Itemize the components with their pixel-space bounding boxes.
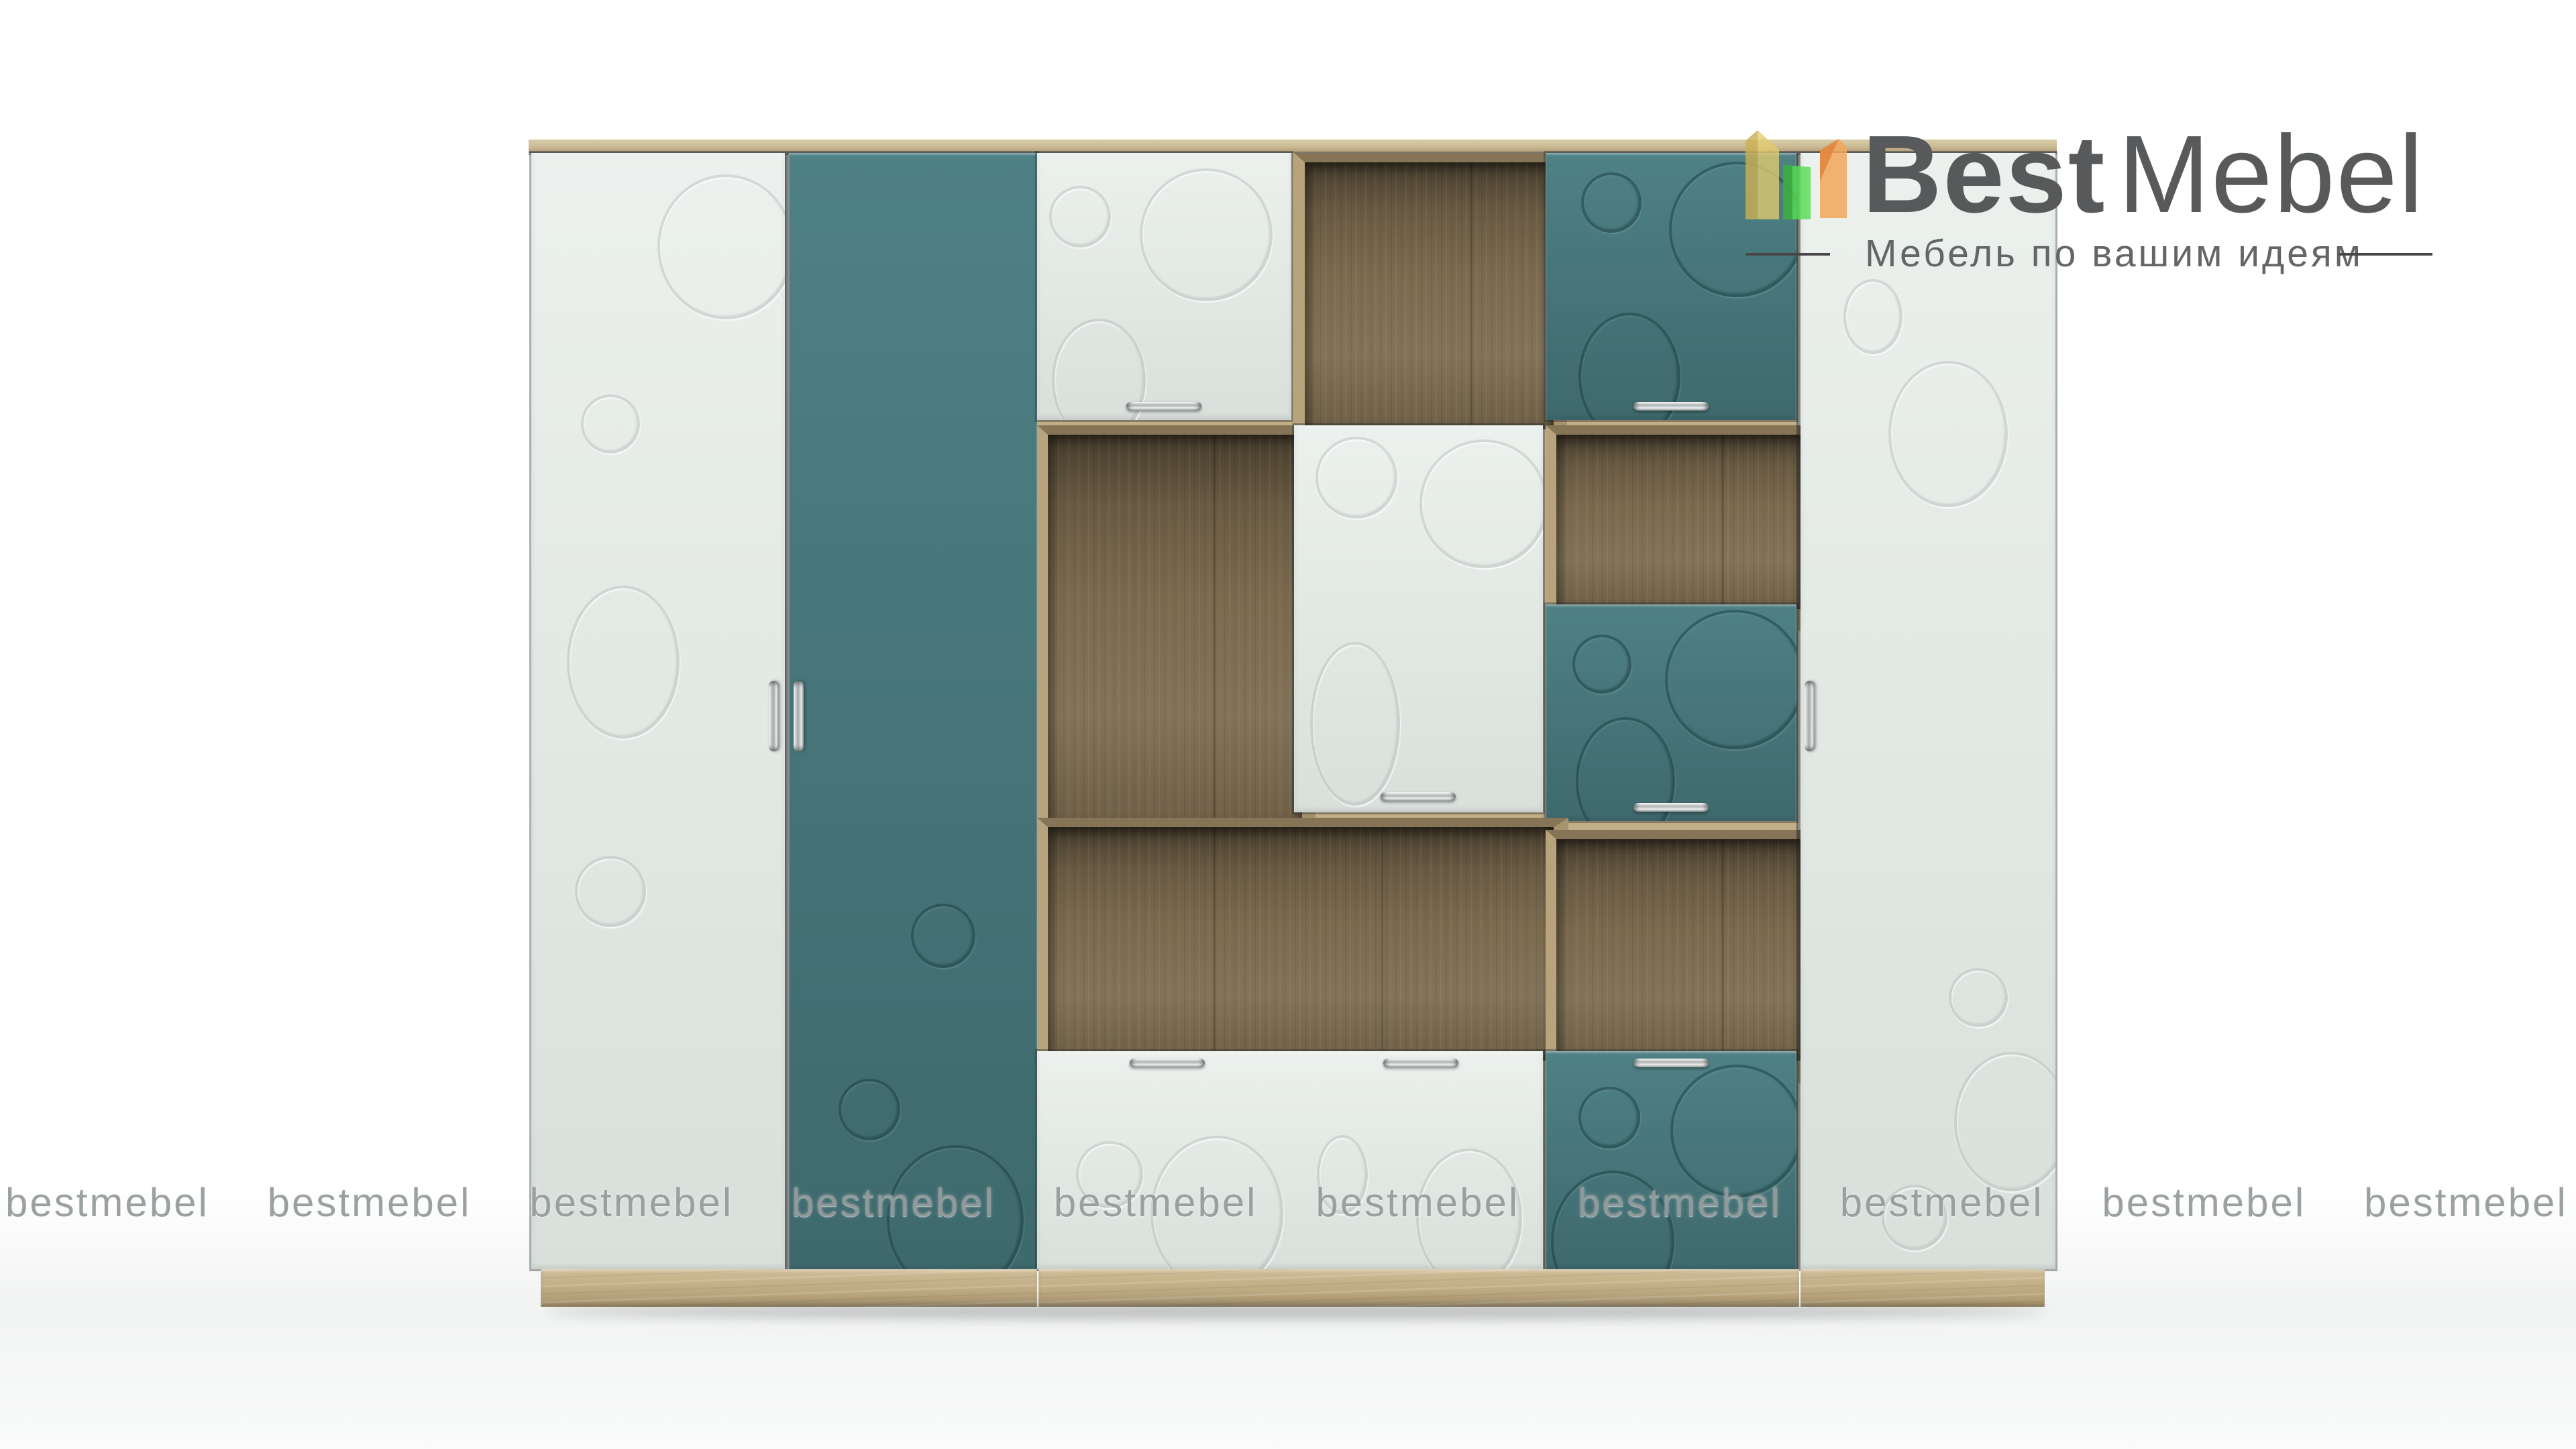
emboss-circle (839, 1079, 900, 1140)
door-handle (1381, 792, 1456, 801)
product-image: bestmebel bestmebel bestmebel bestmebel … (0, 0, 2576, 1449)
emboss-circle (1076, 1141, 1143, 1208)
watermark-text: bestmebel (5, 1179, 209, 1226)
watermark-text: bestmebel (2102, 1179, 2306, 1226)
emboss-circle (1419, 439, 1543, 568)
emboss-circle (1954, 1052, 2055, 1191)
emboss-circle (1416, 1148, 1522, 1269)
emboss-circle (1581, 172, 1642, 233)
shelf-door-mid-teal (1546, 604, 1796, 821)
emboss-circle (1572, 635, 1631, 694)
plinth (1801, 1269, 2045, 1307)
emboss-circle (567, 586, 680, 739)
left-wardrobe-white-door (531, 153, 785, 1269)
shelf-door-bottom-teal (1546, 1051, 1796, 1269)
door-handle (1383, 1059, 1458, 1067)
emboss-circle (1888, 361, 2008, 507)
brand-logo-icon (1744, 129, 1851, 223)
shelf-door-bottom-white (1037, 1051, 1543, 1269)
brand-name-best: Best (1862, 113, 2106, 235)
brand-logo: BestMebel Мебель по вашим идеям (1744, 119, 2455, 280)
emboss-circle (1670, 1065, 1796, 1197)
door-handle (1633, 1059, 1709, 1067)
plinth (1038, 1269, 1799, 1307)
emboss-circle (1843, 279, 1902, 354)
shelf-door-top-white (1037, 153, 1291, 420)
open-compartment (1546, 425, 1819, 631)
plinth (541, 1269, 1037, 1307)
emboss-circle (1049, 186, 1111, 248)
tagline-dash-right (2339, 253, 2432, 256)
brand-tagline: Мебель по вашим идеям (1865, 235, 2363, 273)
door-handle (1130, 1059, 1205, 1067)
emboss-circle (1551, 1171, 1674, 1269)
door-handle (1805, 681, 1815, 751)
emboss-circle (581, 394, 640, 453)
emboss-circle (1310, 642, 1400, 806)
door-handle (1633, 402, 1709, 411)
door-handle (1633, 803, 1709, 812)
left-wardrobe-teal-door (789, 153, 1037, 1269)
tagline-dash-left (1746, 253, 1830, 256)
emboss-circle (1140, 168, 1273, 301)
door-handle (1126, 402, 1201, 411)
open-compartment (1546, 830, 1819, 1083)
wide-open-shelf (1037, 818, 1568, 1085)
watermark-text: bestmebel (2364, 1179, 2568, 1226)
door-handle (769, 681, 779, 751)
door-handle (794, 681, 804, 751)
right-wardrobe-white-door (1801, 153, 2055, 1269)
emboss-circle (887, 1145, 1024, 1269)
emboss-circle (1150, 1136, 1283, 1269)
open-compartment (1294, 153, 1567, 453)
emboss-circle (1317, 1135, 1368, 1214)
open-compartment (1037, 425, 1316, 849)
emboss-circle (575, 856, 646, 927)
floor-shadow (545, 1304, 2047, 1319)
emboss-circle (1578, 1087, 1640, 1148)
emboss-circle (1316, 437, 1397, 519)
watermark-text: bestmebel (268, 1179, 472, 1226)
emboss-circle (1665, 610, 1796, 749)
emboss-circle (1882, 1185, 1947, 1250)
brand-name-mebel: Mebel (2118, 113, 2424, 235)
emboss-circle (911, 904, 975, 968)
emboss-circle (657, 174, 785, 319)
emboss-circle (1949, 968, 2008, 1027)
shelf-door-middle-white (1294, 425, 1543, 812)
brand-name: BestMebel (1862, 119, 2424, 229)
